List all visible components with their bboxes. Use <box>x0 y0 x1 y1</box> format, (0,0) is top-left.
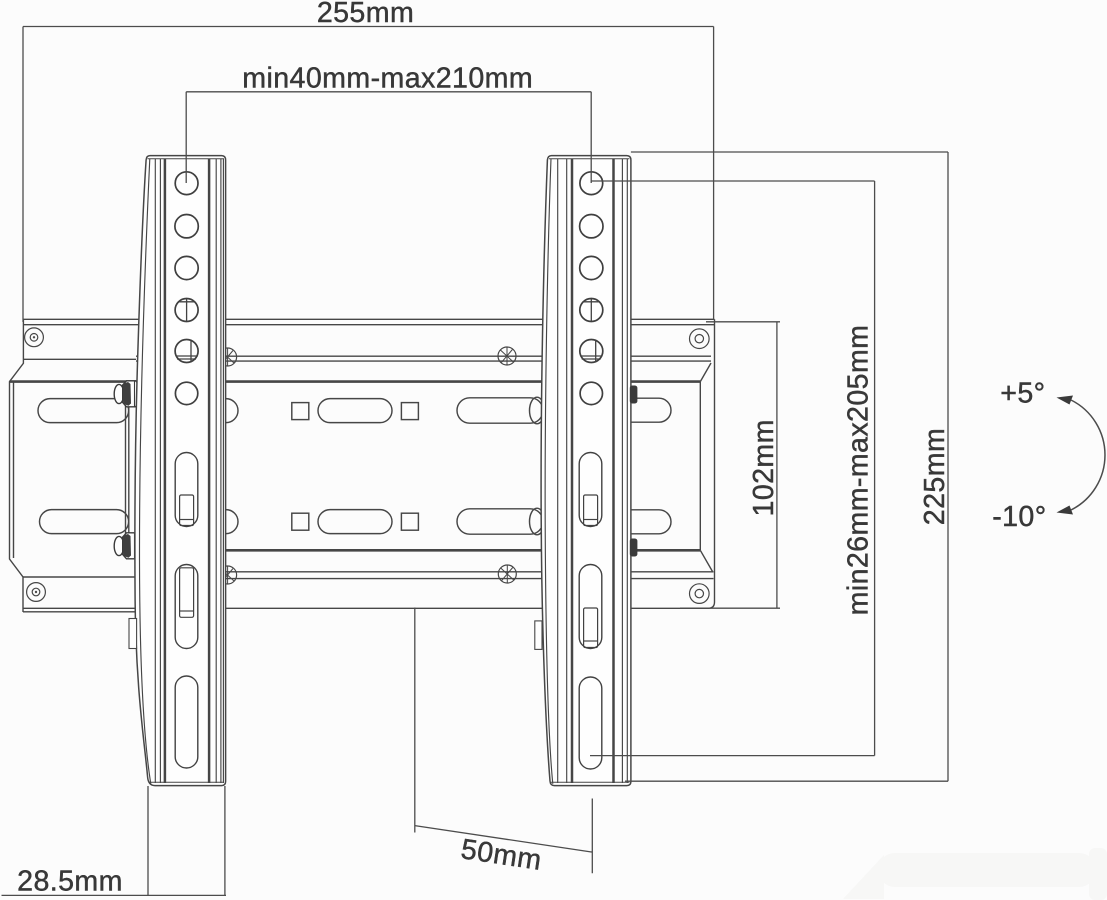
svg-text:min40mm-max210mm: min40mm-max210mm <box>242 62 533 94</box>
svg-text:-10°: -10° <box>992 501 1046 533</box>
svg-text:+5°: +5° <box>1000 378 1045 410</box>
svg-text:min26mm-max205mm: min26mm-max205mm <box>843 325 875 616</box>
svg-text:225mm: 225mm <box>919 428 951 525</box>
svg-text:255mm: 255mm <box>317 0 414 29</box>
svg-text:102mm: 102mm <box>748 419 780 516</box>
svg-text:28.5mm: 28.5mm <box>17 866 123 898</box>
